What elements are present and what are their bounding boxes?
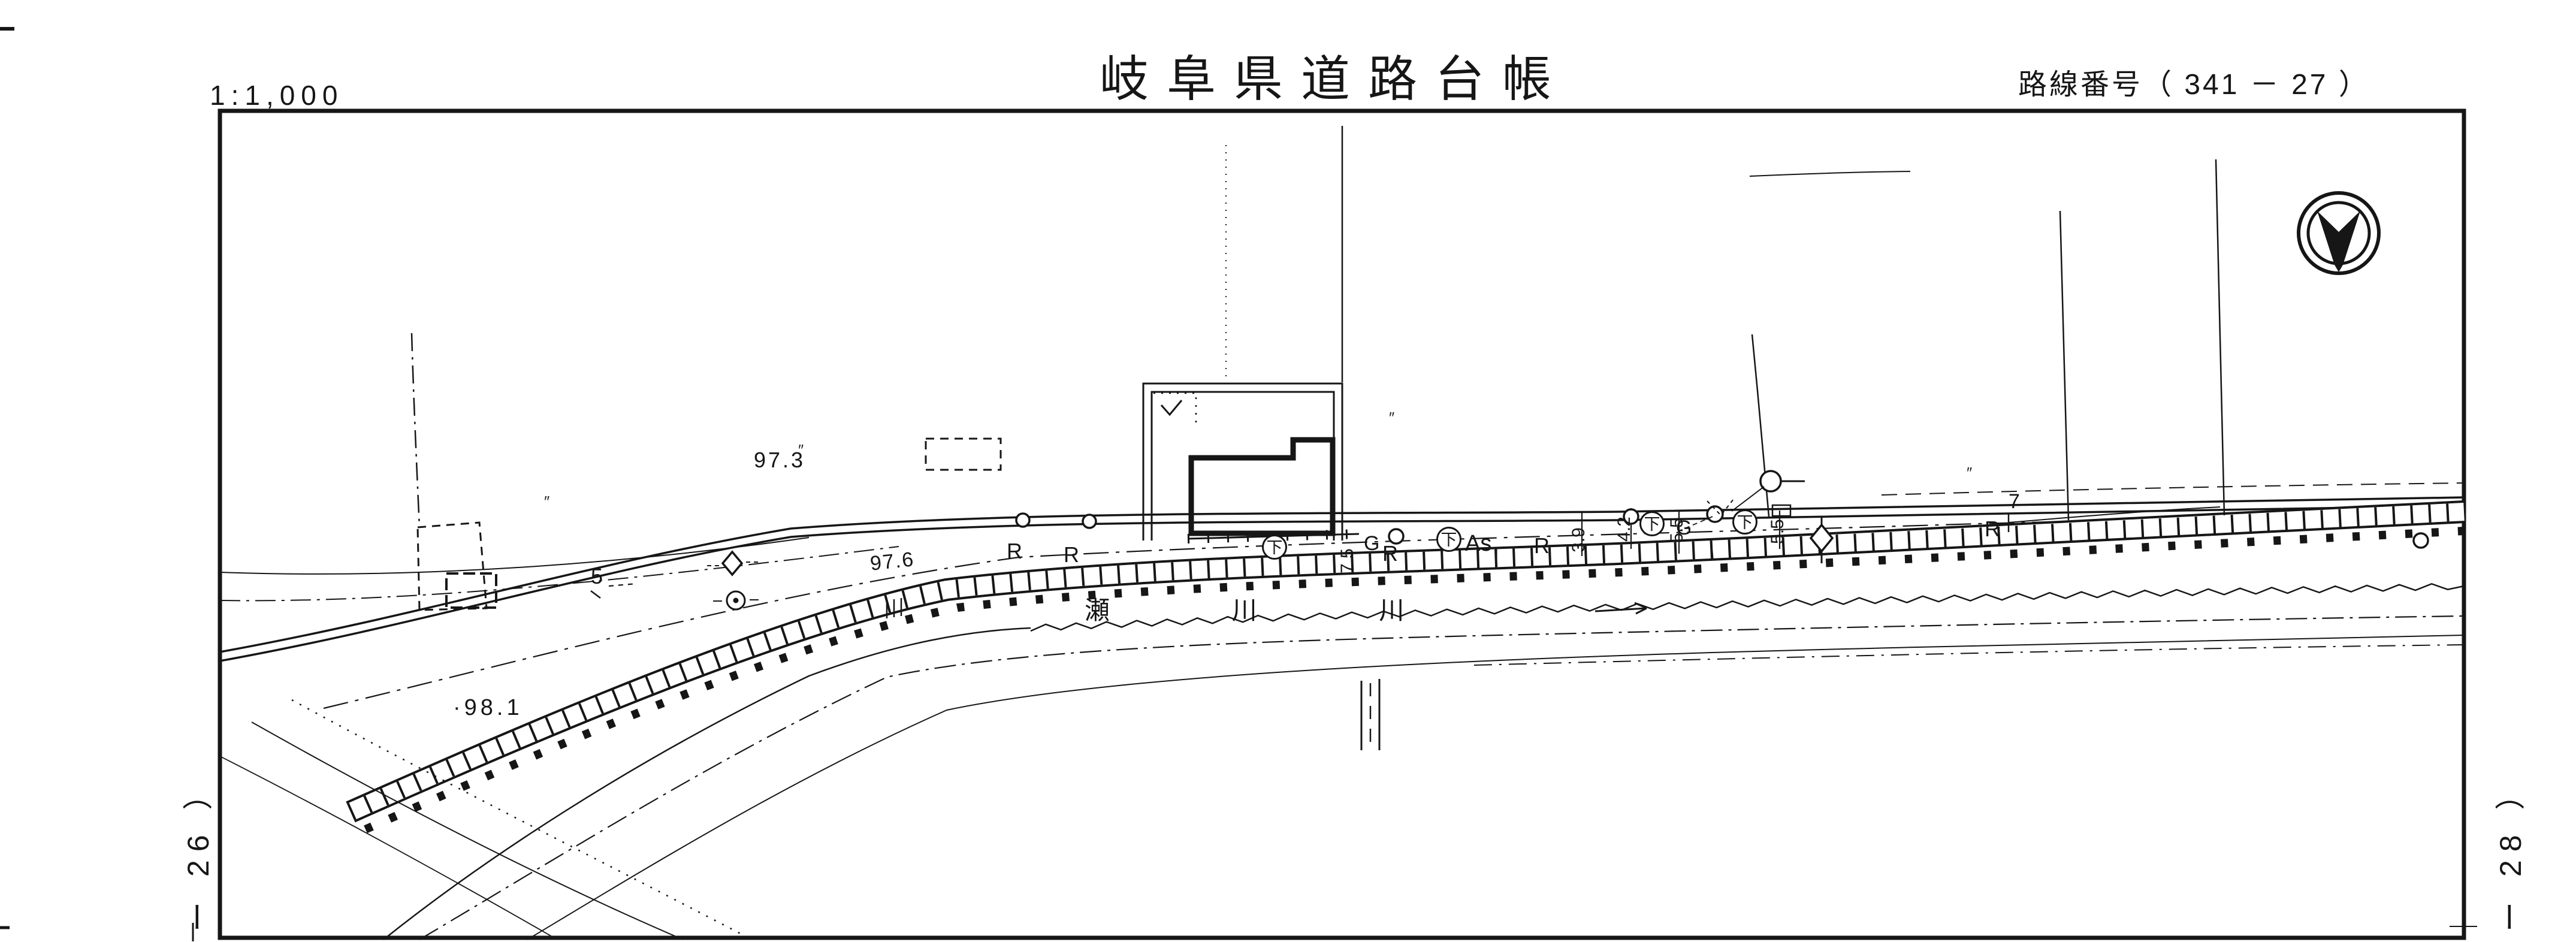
utility-circle-icon: 下 <box>1639 511 1665 536</box>
scale-label: 1:1,000 <box>210 81 343 109</box>
ditto-mark: ″ <box>544 494 549 509</box>
dimension-label: 7 <box>2009 491 2020 512</box>
roadside-mark: R <box>1534 535 1550 557</box>
elevation-label: ·98.1 <box>453 696 523 719</box>
map-drawing <box>0 0 2576 942</box>
river-lines <box>220 598 2464 940</box>
ditto-mark: ″ <box>1389 410 1394 425</box>
roadside-mark: R <box>1985 518 2000 540</box>
check-mark <box>1161 400 1182 415</box>
ditto-mark: ″ <box>798 442 804 458</box>
dimension-label: 7.5 <box>1339 540 1358 582</box>
north-arrow-icon <box>2299 193 2379 273</box>
dimension-label: 3.9 <box>1570 519 1589 561</box>
page-title: 岐阜県道路台帳 <box>1100 55 1569 104</box>
dimension-label: 5 <box>591 566 603 587</box>
route-number-label: 路線番号（ 341 － 27 ） <box>2018 71 2370 99</box>
roadside-mark: R <box>1382 543 1398 564</box>
sheet-ref-left: ー 26 ） <box>183 776 216 932</box>
road-ledger-sheet: 1:1,000 岐阜県道路台帳 路線番号（ 341 － 27 ） ー 26 ） … <box>0 0 2576 942</box>
dimension-label: 5.5 <box>1769 511 1788 552</box>
utility-circle-icon: 下 <box>1262 535 1287 560</box>
utility-circle-icon: 下 <box>1732 509 1757 535</box>
pavement-label: As <box>1465 532 1491 555</box>
roadside-mark: R <box>1007 541 1022 562</box>
elevation-label: 97.6 <box>869 549 915 574</box>
parcel-boundaries <box>412 126 2224 527</box>
dimension-label: 4.2 <box>1615 508 1635 550</box>
river-name-label: 瀬 川 川 <box>1085 598 1461 623</box>
roadside-mark: R <box>1064 544 1079 566</box>
ditto-mark: ″ <box>1967 465 1972 481</box>
dimension-label: 5.5 <box>1668 509 1687 551</box>
benchmark-icon <box>713 591 759 609</box>
sheet-ref-right: ー 28 ） <box>2496 776 2528 932</box>
embankment-band <box>351 512 2464 829</box>
gutter-mark: G <box>1364 533 1379 554</box>
utility-circle-icon: 下 <box>1436 527 1461 552</box>
